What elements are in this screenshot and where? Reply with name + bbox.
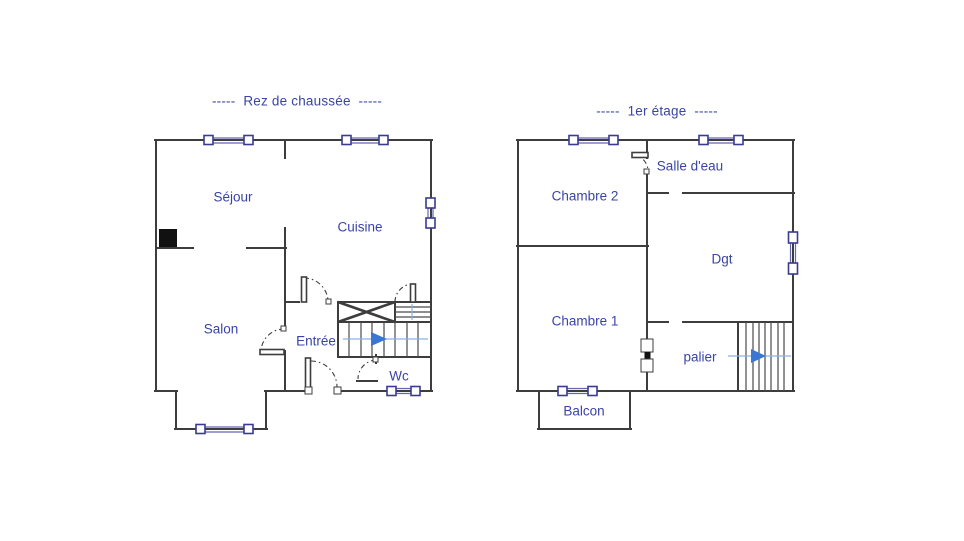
room-label-entree: Entrée <box>296 334 336 348</box>
room-label-chambre2: Chambre 2 <box>552 189 619 203</box>
door-terrace <box>305 358 341 394</box>
floor-plan-image: ----- Rez de chaussée ----- ----- 1er ét… <box>0 0 964 541</box>
room-label-dgt: Dgt <box>711 252 732 266</box>
room-label-chambre1: Chambre 1 <box>552 314 619 328</box>
floor-plan-drawing <box>0 0 964 541</box>
room-label-balcon: Balcon <box>563 404 604 418</box>
fireplace-block <box>159 229 177 247</box>
room-label-salle-deau: Salle d'eau <box>657 159 723 173</box>
ground-floor-plan <box>155 136 435 434</box>
stair-direction-arrow <box>343 332 428 346</box>
exterior-wall <box>155 140 432 429</box>
ground-floor-title: ----- Rez de chaussée ----- <box>212 94 382 108</box>
staircase-ground <box>338 302 431 357</box>
room-label-cuisine: Cuisine <box>337 220 382 234</box>
room-label-wc: Wc <box>389 369 409 383</box>
door-entree-salon-side <box>302 277 332 304</box>
first-floor-title: ----- 1er étage ----- <box>596 104 718 118</box>
door-salon <box>260 326 286 355</box>
staircase-first <box>728 322 793 391</box>
door-wc <box>358 357 378 379</box>
room-label-salon: Salon <box>204 322 239 336</box>
door-salle-deau <box>632 153 649 175</box>
room-label-palier: palier <box>683 350 716 364</box>
first-floor-plan <box>517 136 798 430</box>
door-cuisine <box>395 284 416 302</box>
room-label-sejour: Séjour <box>213 190 252 204</box>
interior-window-symbol <box>641 339 653 372</box>
